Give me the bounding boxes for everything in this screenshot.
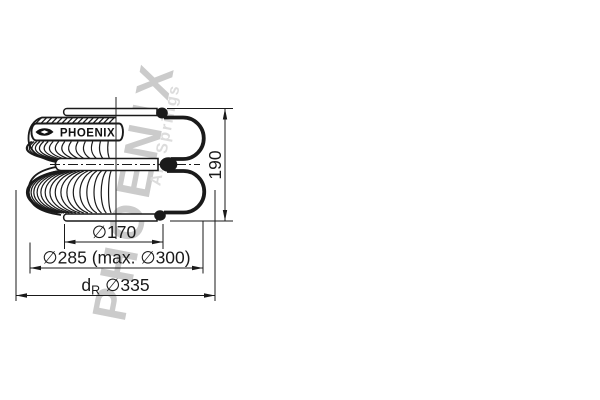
brand-label-text: PHOENIX	[60, 127, 115, 139]
hatch-line	[83, 118, 88, 123]
dim-text-outer-diameter: ∅285 (max. ∅300)	[42, 248, 190, 268]
drawing-canvas: PHOENIX Air Springs PHOENIX	[0, 0, 600, 400]
air-spring-technical-drawing: PHOENIX Air Springs PHOENIX	[0, 0, 600, 400]
lower-wall-section	[164, 171, 204, 213]
bottom-bead	[154, 210, 166, 220]
arrow-285-left-icon	[30, 266, 41, 270]
hatch-line	[57, 118, 62, 123]
hatch-line	[94, 171, 102, 213]
hatch-line	[73, 171, 88, 213]
arrow-190-top-icon	[223, 109, 227, 120]
middle-bead	[160, 157, 178, 171]
hatch-line	[52, 118, 57, 123]
hatch-line	[41, 118, 46, 123]
arrow-335-left-icon	[16, 293, 27, 297]
hatch-line	[93, 118, 98, 123]
hatch-line	[88, 118, 93, 123]
arrow-170-left-icon	[65, 240, 76, 244]
hatch-line	[78, 118, 83, 123]
hatch-line	[67, 118, 72, 123]
hatch-line	[67, 171, 84, 213]
hatch-line	[87, 171, 97, 213]
hatch-line	[72, 118, 77, 123]
lower-bellows-ribs	[27, 171, 112, 213]
rim-prefix: d	[81, 275, 91, 295]
rim-subscript: R	[91, 284, 100, 298]
hatch-line	[46, 118, 51, 123]
arrow-190-bottom-icon	[223, 210, 227, 221]
hatch-line	[104, 118, 109, 123]
hatch-line	[109, 118, 114, 123]
bottom-plate	[64, 214, 157, 221]
top-plate	[64, 109, 157, 116]
hatch-line	[98, 118, 103, 123]
dim-text-plate-diameter: ∅170	[92, 222, 137, 242]
hatch-line	[62, 118, 67, 123]
arrow-335-right-icon	[204, 293, 215, 297]
arrow-285-right-icon	[192, 266, 203, 270]
rim-value: ∅335	[105, 275, 149, 295]
top-bead	[156, 108, 168, 119]
arrow-170-right-icon	[152, 240, 163, 244]
clamped-edge-hatching	[36, 118, 114, 123]
dim-text-height: 190	[205, 150, 225, 179]
